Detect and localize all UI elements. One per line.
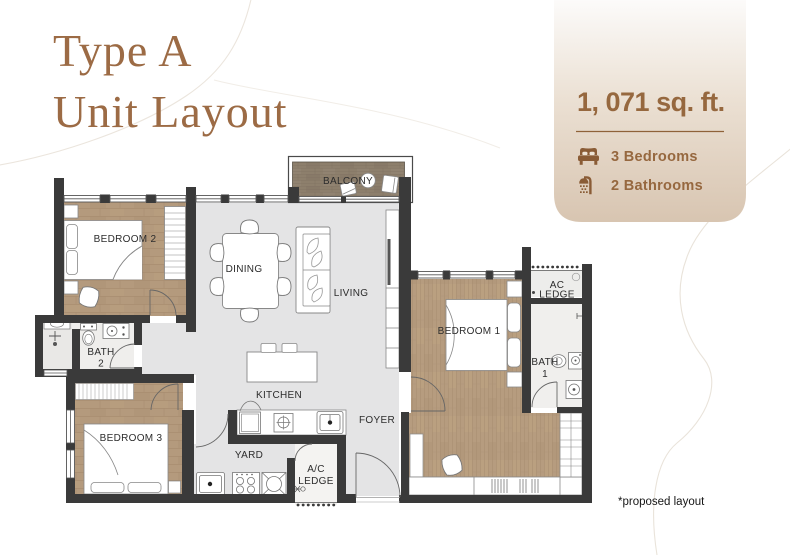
- svg-text:KITCHEN: KITCHEN: [256, 390, 302, 401]
- svg-text:DINING: DINING: [226, 264, 263, 275]
- svg-text:1, 071 sq. ft.: 1, 071 sq. ft.: [577, 87, 725, 117]
- svg-text:*proposed layout: *proposed layout: [618, 496, 705, 508]
- svg-text:BEDROOM 3: BEDROOM 3: [100, 433, 163, 444]
- svg-text:LEDGE: LEDGE: [298, 476, 333, 487]
- svg-text:BEDROOM 1: BEDROOM 1: [438, 326, 501, 337]
- svg-text:BATH: BATH: [87, 347, 114, 358]
- svg-text:A/C: A/C: [307, 464, 325, 475]
- svg-text:Unit Layout: Unit Layout: [53, 86, 288, 137]
- svg-text:LEDGE: LEDGE: [539, 290, 574, 301]
- svg-text:2 Bathrooms: 2 Bathrooms: [611, 178, 703, 194]
- svg-text:2: 2: [98, 359, 104, 370]
- svg-text:FOYER: FOYER: [359, 415, 395, 426]
- svg-text:BEDROOM 2: BEDROOM 2: [94, 234, 157, 245]
- svg-text:YARD: YARD: [235, 450, 263, 461]
- svg-text:BALCONY: BALCONY: [323, 176, 373, 187]
- svg-text:3 Bedrooms: 3 Bedrooms: [611, 149, 698, 165]
- svg-text:1: 1: [542, 369, 548, 380]
- svg-text:LIVING: LIVING: [334, 288, 369, 299]
- svg-text:BATH: BATH: [531, 357, 558, 368]
- svg-text:Type A: Type A: [53, 25, 193, 76]
